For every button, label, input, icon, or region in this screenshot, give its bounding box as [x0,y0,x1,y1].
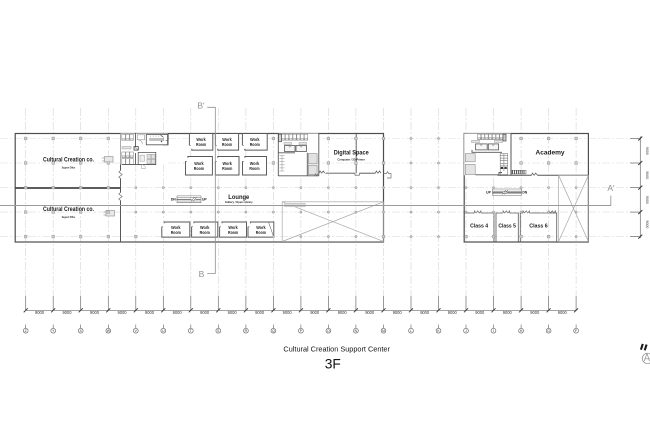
svg-text:9000: 9000 [228,310,238,315]
svg-text:9000: 9000 [90,310,100,315]
svg-text:9000: 9000 [645,220,649,228]
svg-text:Digital Space: Digital Space [334,150,369,157]
svg-text:9000: 9000 [645,171,649,179]
svg-text:9000: 9000 [200,310,210,315]
svg-text:9000: 9000 [145,310,155,315]
svg-text:Room: Room [171,230,182,235]
svg-text:Cultural Creation co.: Cultural Creation co. [43,206,94,213]
svg-text:Support Office: Support Office [62,215,76,219]
svg-text:Class 5: Class 5 [498,223,516,229]
svg-text:O: O [327,329,330,333]
svg-text:9000: 9000 [503,310,513,315]
svg-text:9000: 9000 [448,310,458,315]
svg-text:Room: Room [196,142,207,147]
svg-text:UP: UP [486,191,491,195]
svg-text:Room: Room [194,166,205,171]
svg-text:Support Office: Support Office [62,166,76,170]
svg-text:9000: 9000 [310,310,320,315]
svg-text:9000: 9000 [475,310,485,315]
svg-text:Room: Room [222,166,233,171]
svg-text:A': A' [607,183,615,193]
svg-text:DN: DN [522,191,527,195]
svg-text:9000: 9000 [338,310,348,315]
svg-text:M: M [382,329,385,333]
svg-text:9000: 9000 [365,310,375,315]
svg-text:Class 6: Class 6 [529,223,548,229]
svg-text:9000: 9000 [173,310,183,315]
svg-text:Cultural Creation co.: Cultural Creation co. [43,157,94,164]
svg-text:UP: UP [202,198,207,202]
svg-text:9000: 9000 [645,196,649,204]
svg-text:F: F [575,329,577,333]
svg-text:L: L [410,329,412,333]
svg-text:Room: Room [222,142,233,147]
svg-text:9000: 9000 [283,310,293,315]
svg-text:Q: Q [272,329,275,333]
svg-text:Room: Room [250,142,261,147]
svg-text:Room: Room [200,230,211,235]
svg-text:9000: 9000 [63,310,73,315]
svg-text:9000: 9000 [393,310,403,315]
svg-text:9000: 9000 [420,310,430,315]
svg-text:9000: 9000 [558,310,568,315]
svg-text:B': B' [197,101,205,111]
svg-text:Cultural Creation Support Cent: Cultural Creation Support Center [283,346,390,353]
svg-text:9000: 9000 [530,310,540,315]
svg-text:3F: 3F [325,356,341,371]
svg-text:DN: DN [171,198,176,202]
svg-text:9000: 9000 [35,310,45,315]
svg-text:Academy: Academy [536,149,565,156]
svg-text:J: J [465,329,467,333]
svg-text:G: G [547,329,550,333]
svg-text:Room: Room [249,166,260,171]
svg-text:9000: 9000 [645,147,649,155]
svg-text:Class 4: Class 4 [470,223,489,229]
svg-text:Gallery / Open Library: Gallery / Open Library [225,200,253,204]
svg-text:T: T [190,329,192,333]
svg-text:9000: 9000 [118,310,128,315]
svg-text:9000: 9000 [255,310,265,315]
svg-text:Room: Room [256,230,267,235]
svg-text:Computer / 3D Printer: Computer / 3D Printer [337,157,365,161]
svg-text:I: I [493,329,494,333]
svg-text:B: B [199,269,205,279]
svg-text:Z: Z [25,329,27,333]
svg-text:Room: Room [228,230,239,235]
